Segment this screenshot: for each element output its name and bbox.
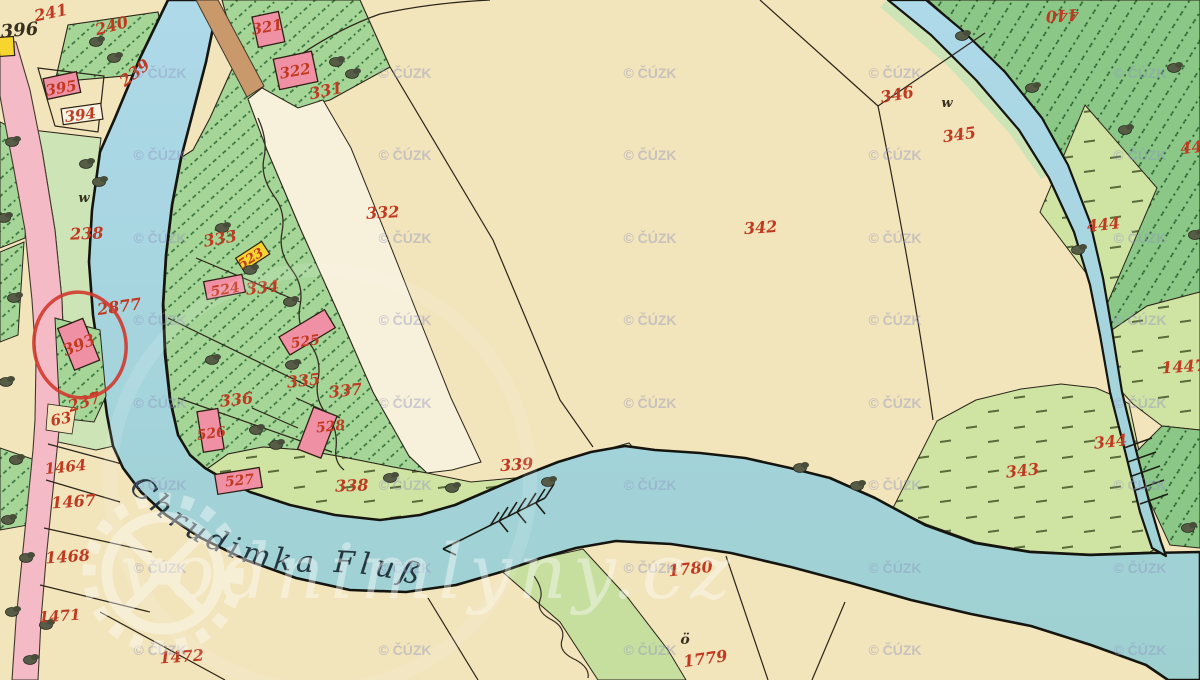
copyright-watermark: © ČÚZK	[378, 146, 431, 163]
cadastral-map: 241240396239395394238w321322331332333523…	[0, 0, 1200, 680]
parcel-number-label: 342	[743, 217, 778, 238]
copyright-watermark: © ČÚZK	[1113, 146, 1166, 163]
copyright-watermark: © ČÚZK	[868, 476, 921, 493]
copyright-watermark: © ČÚZK	[378, 229, 431, 246]
copyright-watermark: © ČÚZK	[1113, 311, 1166, 328]
copyright-watermark: © ČÚZK	[378, 394, 431, 411]
parcel-number-label: 1467	[51, 490, 97, 512]
parcel-number-label: 44	[1179, 137, 1200, 158]
parcel-number-label: 336	[219, 388, 254, 410]
parcel-number-label: 1471	[38, 606, 81, 627]
copyright-watermark: © ČÚZK	[623, 394, 676, 411]
copyright-watermark: © ČÚZK	[868, 559, 921, 576]
parcel-number-label: 337	[328, 379, 363, 401]
copyright-watermark: © ČÚZK	[378, 64, 431, 81]
parcel-number-label: 332	[366, 202, 400, 223]
copyright-watermark: © ČÚZK	[133, 64, 186, 81]
copyright-watermark: © ČÚZK	[868, 311, 921, 328]
parcel-number-label: 1447	[1161, 355, 1200, 377]
copyright-watermark: © ČÚZK	[1113, 394, 1166, 411]
copyright-watermark: © ČÚZK	[133, 476, 186, 493]
copyright-watermark: © ČÚZK	[623, 64, 676, 81]
parcel-number-label: 335	[286, 369, 321, 391]
site-watermark-text: vodnimlyny.cz	[120, 527, 736, 616]
copyright-watermark: © ČÚZK	[623, 311, 676, 328]
copyright-watermark: © ČÚZK	[133, 394, 186, 411]
parcel-number-label: 344	[1093, 430, 1128, 452]
copyright-watermark: © ČÚZK	[868, 146, 921, 163]
copyright-watermark: © ČÚZK	[868, 641, 921, 658]
copyright-watermark: © ČÚZK	[1113, 641, 1166, 658]
copyright-watermark: © ČÚZK	[1113, 229, 1166, 246]
parcel-number-label: ö	[680, 632, 689, 648]
parcel-number-label: 440	[1045, 5, 1080, 26]
parcel-number-label: w	[941, 96, 953, 111]
copyright-watermark: © ČÚZK	[133, 146, 186, 163]
copyright-watermark: © ČÚZK	[1113, 559, 1166, 576]
parcel-number-label: w	[78, 191, 90, 206]
copyright-watermark: © ČÚZK	[1113, 476, 1166, 493]
copyright-watermark: © ČÚZK	[868, 229, 921, 246]
copyright-watermark: © ČÚZK	[623, 476, 676, 493]
copyright-watermark: © ČÚZK	[623, 146, 676, 163]
copyright-watermark: © ČÚZK	[378, 311, 431, 328]
parcel-number-label: 527	[224, 472, 255, 491]
copyright-watermark: © ČÚZK	[1113, 64, 1166, 81]
copyright-watermark: © ČÚZK	[868, 394, 921, 411]
copyright-watermark: © ČÚZK	[378, 476, 431, 493]
parcel-number-label: 528	[315, 418, 346, 437]
copyright-watermark: © ČÚZK	[623, 229, 676, 246]
parcel-number-label: 338	[335, 475, 369, 495]
map-canvas: 241240396239395394238w321322331332333523…	[0, 0, 1200, 680]
copyright-watermark: © ČÚZK	[623, 641, 676, 658]
parcel-number-label: 238	[69, 223, 104, 243]
copyright-watermark: © ČÚZK	[133, 229, 186, 246]
copyright-watermark: © ČÚZK	[868, 64, 921, 81]
parcel-number-label: 396	[0, 18, 40, 42]
parcel-number-label: 343	[1005, 459, 1040, 481]
